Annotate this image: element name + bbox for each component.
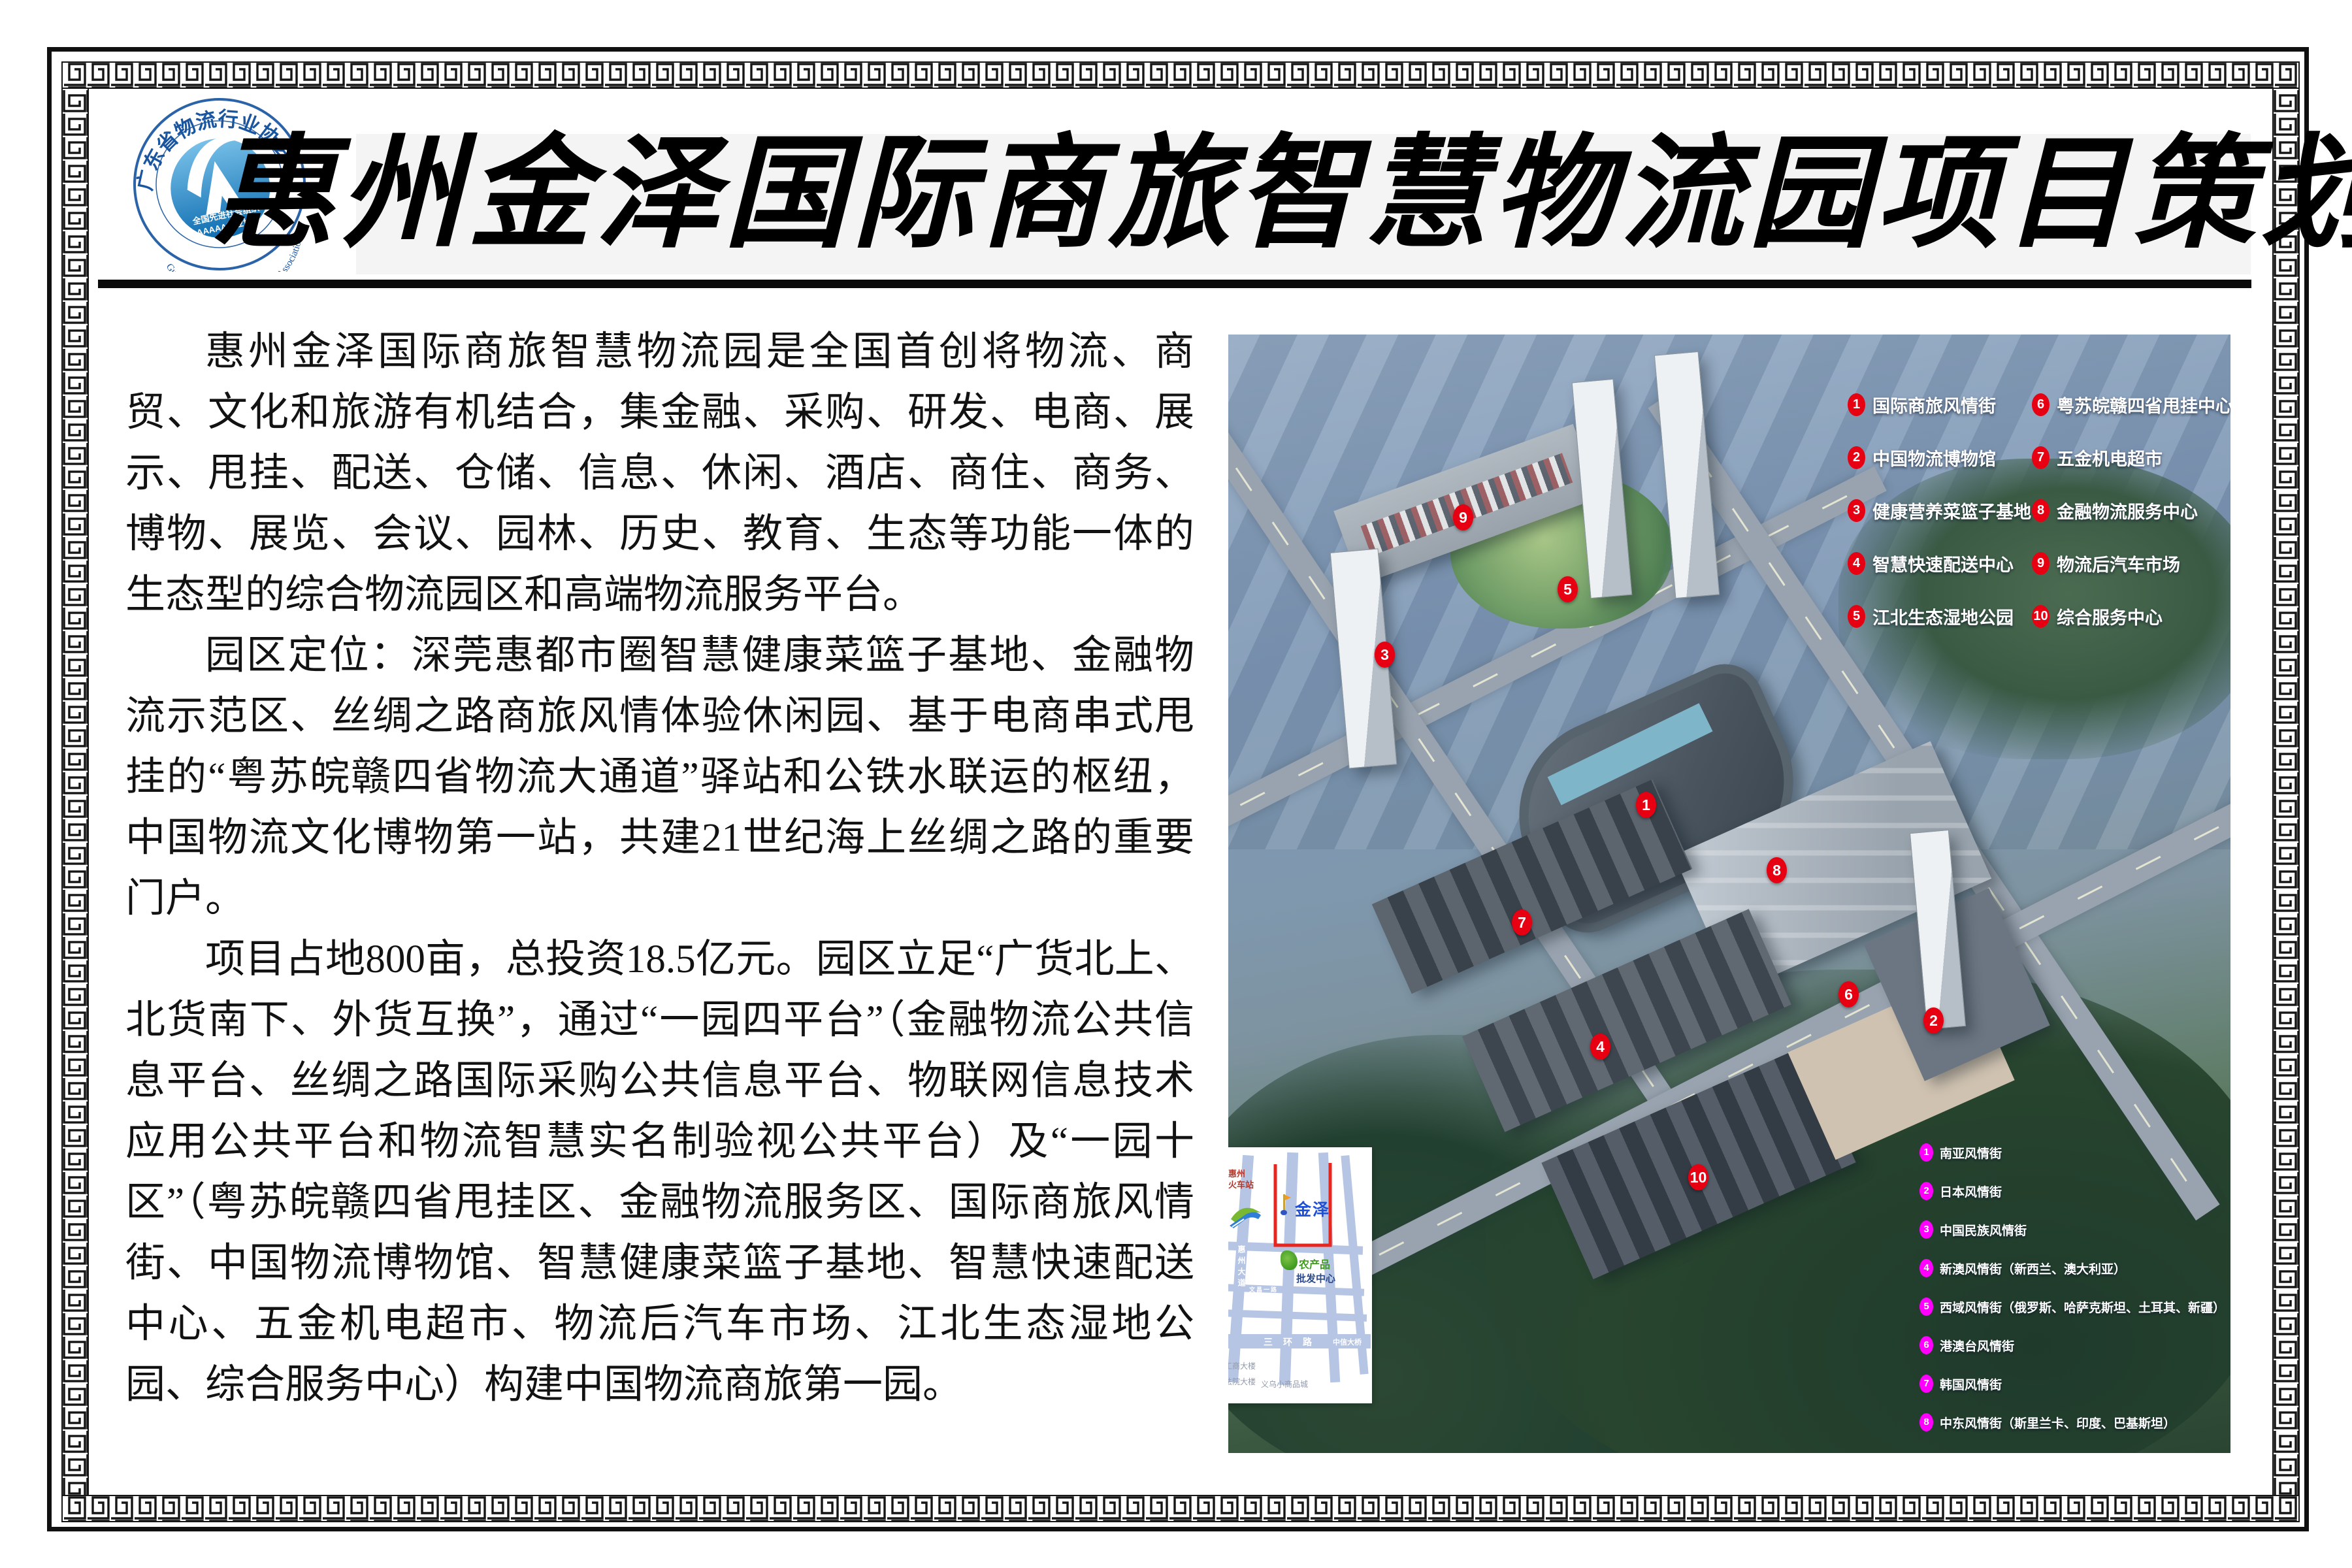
map-bridge-label: 中信大桥 [1333,1337,1362,1347]
meander-border-bottom [61,1495,2300,1522]
site-marker-badge: 3 [1375,642,1395,668]
legend-zone-label: 国际商旅风情街 [1872,392,1996,417]
legend-street-item: 8 中东风情街（斯里兰卡、印度、巴基斯坦） [1919,1413,2225,1431]
aerial-render-panel: 9 5 3 1 8 7 [1228,335,2230,1453]
legend-street-number-badge: 2 [1919,1182,1933,1200]
header-divider-rule [98,280,2251,288]
site-marker-number: 8 [1772,862,1781,879]
legend-zone-number-badge: 7 [2032,446,2050,469]
map-poi-label: 法院大楼 [1228,1376,1256,1387]
legend-zone-label: 中国物流博物馆 [1872,445,1996,470]
legend-zone-number-badge: 4 [1848,552,1865,575]
legend-zone-label: 健康营养菜篮子基地 [1872,498,2031,523]
legend-zone-item: 4 智慧快速配送中心 [1848,551,2031,576]
legend-zone-number-badge: 1 [1848,393,1865,416]
meander-border-right [2272,88,2300,1496]
legend-zone-number-badge: 3 [1848,499,1865,522]
legend-street-label: 日本风情街 [1940,1183,2002,1200]
map-poi-label: 义乌小商品城 [1261,1379,1308,1390]
poster-title: 惠州金泽国际商旅智慧物流园项目策划 [327,86,2274,279]
legend-street-item: 7 韩国风情街 [1919,1375,2225,1393]
legend-zone-number-badge: 9 [2032,552,2050,575]
map-train-icon [1228,1200,1265,1231]
legend-zone-label: 综合服务中心 [2057,604,2163,629]
map-market-label-line2: 批发中心 [1296,1271,1335,1285]
site-marker-number: 7 [1518,914,1526,932]
legend-street-label: 中国民族风情街 [1940,1221,2027,1239]
site-marker-badge: 10 [1688,1164,1708,1190]
legend-zone-item: 1 国际商旅风情街 [1848,392,2031,417]
legend-zone-label: 江北生态湿地公园 [1872,604,2014,629]
poster: 广东省物流行业协会 GuangDong Logistics Profession… [0,0,2352,1568]
legend-street-label: 港澳台风情街 [1940,1337,2014,1354]
legend-street-item: 2 日本风情街 [1919,1182,2225,1200]
meander-border-left [61,88,89,1496]
legend-street-label: 新澳风情街（新西兰、澳大利亚） [1940,1260,2126,1277]
legend-street-number-badge: 1 [1919,1143,1933,1162]
legend-street-label: 西域风情街（俄罗斯、哈萨克斯坦、土耳其、新疆） [1940,1298,2225,1316]
legend-zone-item: 8 金融物流服务中心 [2032,498,2230,523]
site-marker-badge: 5 [1558,576,1578,602]
site-marker-number: 1 [1642,796,1650,814]
legend-street-number-badge: 7 [1919,1375,1933,1393]
site-marker-badge: 7 [1512,909,1532,936]
legend-street-item: 5 西域风情街（俄罗斯、哈萨克斯坦、土耳其、新疆） [1919,1298,2225,1316]
legend-zone-number-badge: 2 [1848,446,1865,469]
site-marker-number: 10 [1690,1169,1707,1186]
legend-streets: 1 南亚风情街 2 日本风情街 3 中国民族风情街 4 新澳风情街（新西兰、澳大… [1919,1143,2225,1431]
site-marker-badge: 4 [1590,1034,1610,1060]
legend-zone-item: 5 江北生态湿地公园 [1848,604,2031,629]
legend-street-number-badge: 6 [1919,1336,1933,1354]
legend-street-label: 南亚风情街 [1940,1144,2002,1162]
map-poi-label: 工商大楼 [1228,1360,1256,1371]
site-marker-badge: 8 [1767,857,1787,883]
map-street-label: 文昌一路 [1249,1285,1278,1294]
site-marker-badge: 1 [1636,792,1656,818]
legend-zone-label: 粤苏皖赣四省甩挂中心 [2057,392,2230,417]
legend-street-item: 1 南亚风情街 [1919,1143,2225,1162]
site-marker-badge: 9 [1453,504,1473,531]
site-marker-number: 5 [1563,581,1572,598]
legend-zone-item: 2 中国物流博物馆 [1848,445,2031,470]
legend-zone-item: 6 粤苏皖赣四省甩挂中心 [2032,392,2230,417]
article-paragraph: 园区定位：深莞惠都市圈智慧健康菜篮子基地、金融物流示范区、丝绸之路商旅风情体验休… [125,625,1194,929]
site-marker-number: 3 [1380,646,1389,664]
legend-zone-item: 9 物流后汽车市场 [2032,551,2230,576]
legend-zones-right: 6 粤苏皖赣四省甩挂中心 7 五金机电超市 8 金融物流服务中心 9 物流后汽车… [2032,392,2230,629]
article-text: 惠州金泽国际商旅智慧物流园是全国首创将物流、商贸、文化和旅游有机结合，集金融、采… [125,321,1194,1415]
legend-street-item: 6 港澳台风情街 [1919,1336,2225,1354]
map-market-label-line1: 农产品 [1299,1256,1330,1271]
legend-street-number-badge: 5 [1919,1298,1933,1316]
legend-zone-label: 物流后汽车市场 [2057,551,2180,576]
map-avenue-label: 惠州大道 [1236,1245,1247,1290]
legend-zone-number-badge: 5 [1848,605,1865,628]
site-marker-number: 4 [1596,1038,1605,1056]
map-ring-road-label: 三环路 [1264,1335,1322,1348]
site-marker-number: 9 [1459,509,1467,527]
legend-zone-label: 金融物流服务中心 [2057,498,2198,523]
article-paragraph: 惠州金泽国际商旅智慧物流园是全国首创将物流、商贸、文化和旅游有机结合，集金融、采… [125,321,1194,625]
site-marker-badge: 2 [1923,1007,1944,1034]
legend-zone-number-badge: 8 [2032,499,2050,522]
article-paragraph: 项目占地800亩，总投资18.5亿元。园区立足“广货北上、北货南下、外货互换”，… [125,929,1194,1415]
legend-zone-item: 7 五金机电超市 [2032,445,2230,470]
site-marker-number: 6 [1844,986,1853,1004]
legend-street-label: 韩国风情街 [1940,1375,2002,1393]
map-flag-icon [1278,1193,1291,1215]
legend-street-item: 3 中国民族风情街 [1919,1220,2225,1239]
legend-street-number-badge: 3 [1919,1220,1933,1239]
legend-zone-number-badge: 6 [2032,393,2050,416]
map-station-label: 惠州 火车站 [1228,1168,1254,1190]
legend-street-number-badge: 4 [1919,1259,1933,1277]
site-marker-badge: 6 [1838,981,1859,1007]
legend-zones-left: 1 国际商旅风情街 2 中国物流博物馆 3 健康营养菜篮子基地 4 智慧快速配送… [1848,392,2031,629]
map-project-label: 金泽 [1295,1197,1330,1220]
location-inset-map: 金泽 农产品 批发中心 惠州 火车站 三环路 中信大桥 惠州大道 文昌一路 工商… [1228,1147,1372,1403]
legend-street-label: 中东风情街（斯里兰卡、印度、巴基斯坦） [1940,1414,2176,1431]
legend-zone-item: 10 综合服务中心 [2032,604,2230,629]
meander-border-top [61,61,2300,89]
legend-street-item: 4 新澳风情街（新西兰、澳大利亚） [1919,1259,2225,1277]
site-marker-number: 2 [1929,1012,1938,1030]
legend-street-number-badge: 8 [1919,1413,1933,1431]
legend-zone-number-badge: 10 [2032,605,2050,628]
legend-zone-label: 智慧快速配送中心 [1872,551,2014,576]
legend-zone-label: 五金机电超市 [2057,445,2163,470]
legend-zone-item: 3 健康营养菜篮子基地 [1848,498,2031,523]
